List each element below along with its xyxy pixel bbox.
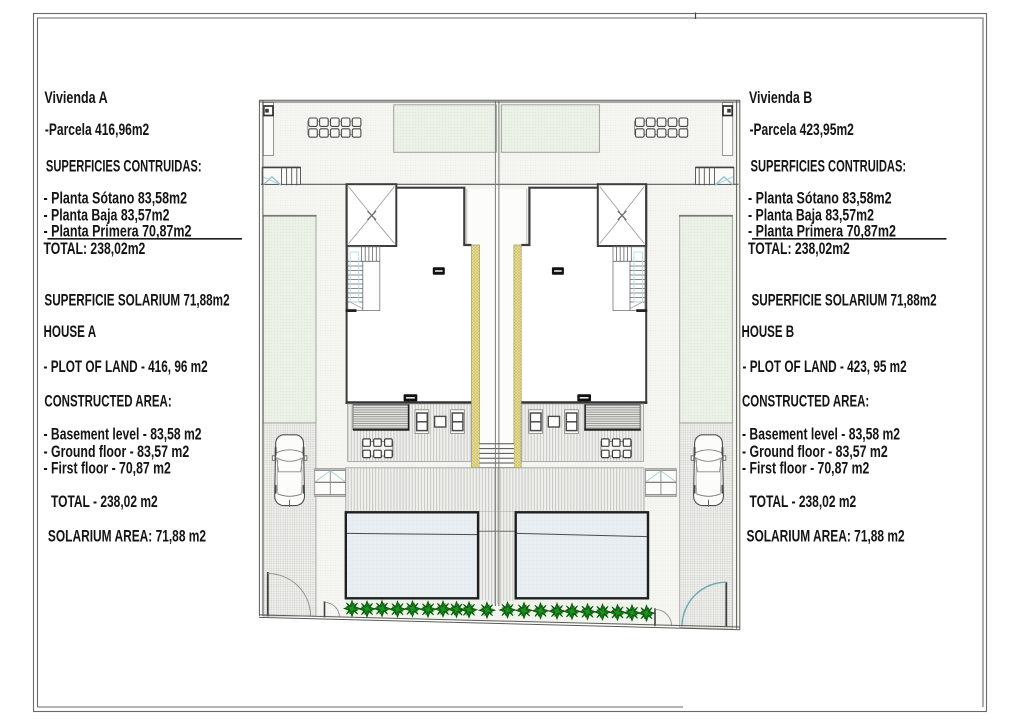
svg-text:SUPERFICIES CONTRUIDAS:: SUPERFICIES CONTRUIDAS:	[46, 157, 202, 176]
svg-text:SOLARIUM AREA: 71,88 m2: SOLARIUM AREA: 71,88 m2	[747, 527, 905, 546]
svg-text:-Parcela 423,95m2: -Parcela 423,95m2	[750, 121, 854, 139]
svg-text:- PLOT OF LAND - 423, 95 m2: - PLOT OF LAND - 423, 95 m2	[743, 358, 907, 377]
svg-text:HOUSE B: HOUSE B	[742, 323, 795, 342]
svg-text:SUPERFICIES CONTRUIDAS:: SUPERFICIES CONTRUIDAS:	[751, 157, 907, 176]
svg-text:HOUSE A: HOUSE A	[44, 323, 97, 342]
svg-text:- Basement level - 83,58 m2: - Basement level - 83,58 m2	[742, 425, 900, 443]
svg-text:TOTAL - 238,02 m2: TOTAL - 238,02 m2	[750, 493, 857, 511]
svg-text:- First floor - 70,87 m2: - First floor - 70,87 m2	[742, 460, 869, 478]
svg-text:- PLOT OF LAND - 416, 96 m2: - PLOT OF LAND - 416, 96 m2	[44, 358, 208, 377]
svg-text:- Basement level - 83,58 m2: - Basement level - 83,58 m2	[44, 425, 202, 443]
svg-text:- Planta Sótano 83,58m2: - Planta Sótano 83,58m2	[748, 190, 892, 208]
svg-text:- Ground floor - 83,57 m2: - Ground floor - 83,57 m2	[742, 443, 888, 461]
svg-text:- First floor - 70,87 m2: - First floor - 70,87 m2	[44, 460, 171, 478]
svg-text:Vivienda A: Vivienda A	[44, 88, 107, 107]
svg-text:TOTAL - 238,02 m2: TOTAL - 238,02 m2	[51, 493, 158, 511]
svg-text:-Parcela 416,96m2: -Parcela 416,96m2	[45, 121, 149, 139]
svg-text:TOTAL: 238,02m2: TOTAL: 238,02m2	[44, 240, 146, 258]
svg-text:SUPERFICIE SOLARIUM 71,88m2: SUPERFICIE SOLARIUM 71,88m2	[752, 291, 937, 310]
svg-text:- Ground floor - 83,57 m2: - Ground floor - 83,57 m2	[44, 443, 190, 461]
svg-text:Vivienda B: Vivienda B	[749, 89, 812, 107]
svg-text:TOTAL: 238,02m2: TOTAL: 238,02m2	[748, 240, 850, 258]
svg-text:CONSTRUCTED AREA:: CONSTRUCTED AREA:	[44, 392, 171, 411]
svg-text:SOLARIUM AREA: 71,88 m2: SOLARIUM AREA: 71,88 m2	[48, 527, 206, 546]
svg-text:SUPERFICIE SOLARIUM 71,88m2: SUPERFICIE SOLARIUM 71,88m2	[44, 291, 229, 310]
svg-text:CONSTRUCTED AREA:: CONSTRUCTED AREA:	[742, 392, 869, 411]
svg-text:- Planta Sótano 83,58m2: - Planta Sótano 83,58m2	[44, 190, 188, 208]
